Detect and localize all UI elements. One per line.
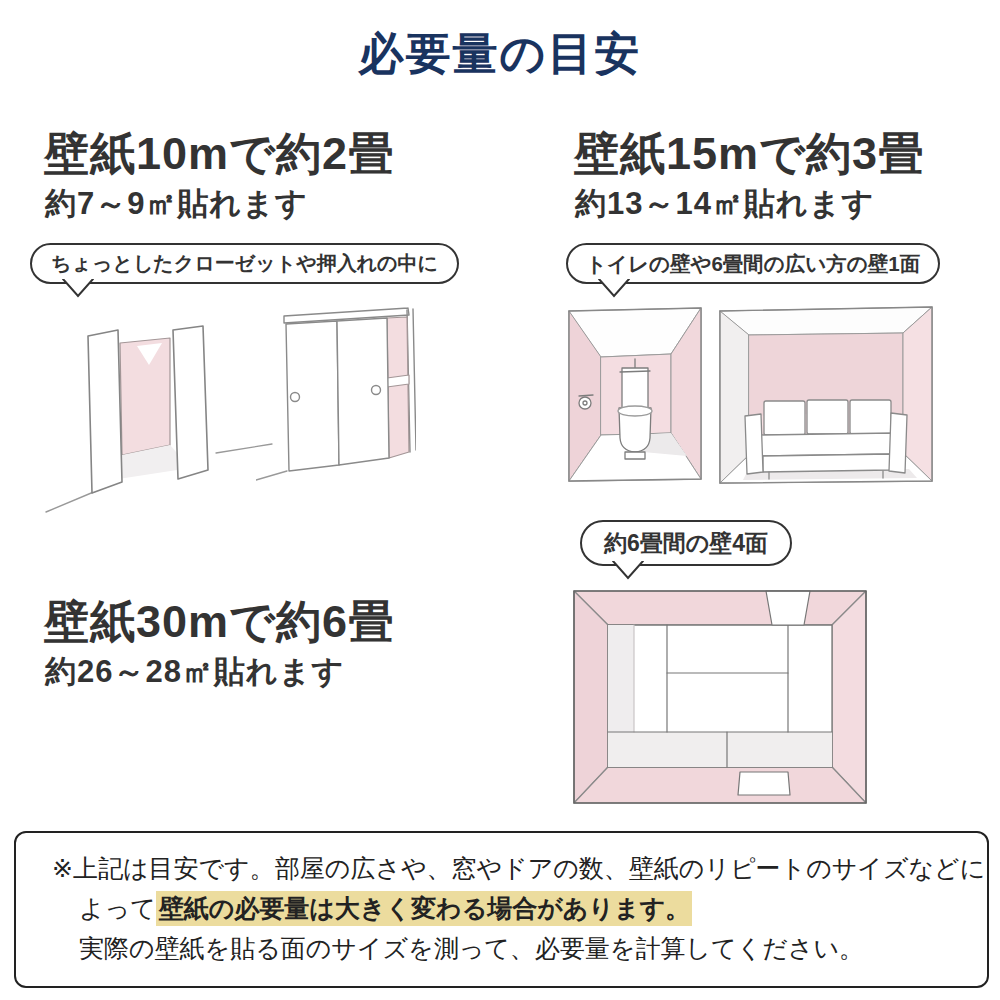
speech-bubble-10m-label: ちょっとしたクローゼットや押入れの中に: [51, 245, 438, 282]
wallpaper-quantity-guide: 必要量の目安 壁紙10mで約2畳 約7～9㎡貼れます ちょっとしたクローゼットや…: [0, 0, 1000, 1000]
note-line-2: よって壁紙の必要量は大きく変わる場合があります。: [79, 888, 971, 928]
note-box: ※上記は目安です。部屋の広さや、窓やドアの数、壁紙のリピートのサイズなどに よっ…: [14, 831, 989, 988]
page-title: 必要量の目安: [0, 24, 1000, 84]
note-line-1: ※上記は目安です。部屋の広さや、窓やドアの数、壁紙のリピートのサイズなどに: [52, 848, 971, 888]
tatami-room-illustration: [570, 583, 870, 809]
speech-bubble-15m: トイレの壁や6畳間の広い方の壁1面: [566, 243, 940, 284]
speech-bubble-15m-label: トイレの壁や6畳間の広い方の壁1面: [586, 245, 920, 282]
subline-15m: 約13～14㎡貼れます: [575, 188, 874, 219]
speech-bubble-6mat: 約6畳間の壁4面: [580, 520, 792, 566]
note-line-2-prefix: よって: [79, 894, 156, 922]
subline-30m: 約26～28㎡貼れます: [45, 656, 344, 687]
subline-10m: 約7～9㎡貼れます: [45, 188, 308, 219]
headline-30m: 壁紙30mで約6畳: [44, 599, 394, 644]
note-highlight: 壁紙の必要量は大きく変わる場合があります。: [156, 891, 692, 926]
sofa-room-illustration: [717, 304, 935, 486]
headline-10m: 壁紙10mで約2畳: [44, 131, 394, 176]
note-line-3: 実際の壁紙を貼る面のサイズを測って、必要量を計算してください。: [79, 928, 971, 968]
open-closet-illustration: [40, 298, 275, 520]
headline-15m: 壁紙15mで約3畳: [574, 131, 924, 176]
bubble-tail-icon: [596, 279, 632, 301]
sliding-closet-illustration: [256, 290, 416, 485]
speech-bubble-10m: ちょっとしたクローゼットや押入れの中に: [30, 243, 459, 284]
toilet-room-illustration: [565, 304, 705, 484]
bubble-tail-icon: [610, 561, 646, 583]
speech-bubble-6mat-label: 約6畳間の壁4面: [604, 522, 768, 564]
